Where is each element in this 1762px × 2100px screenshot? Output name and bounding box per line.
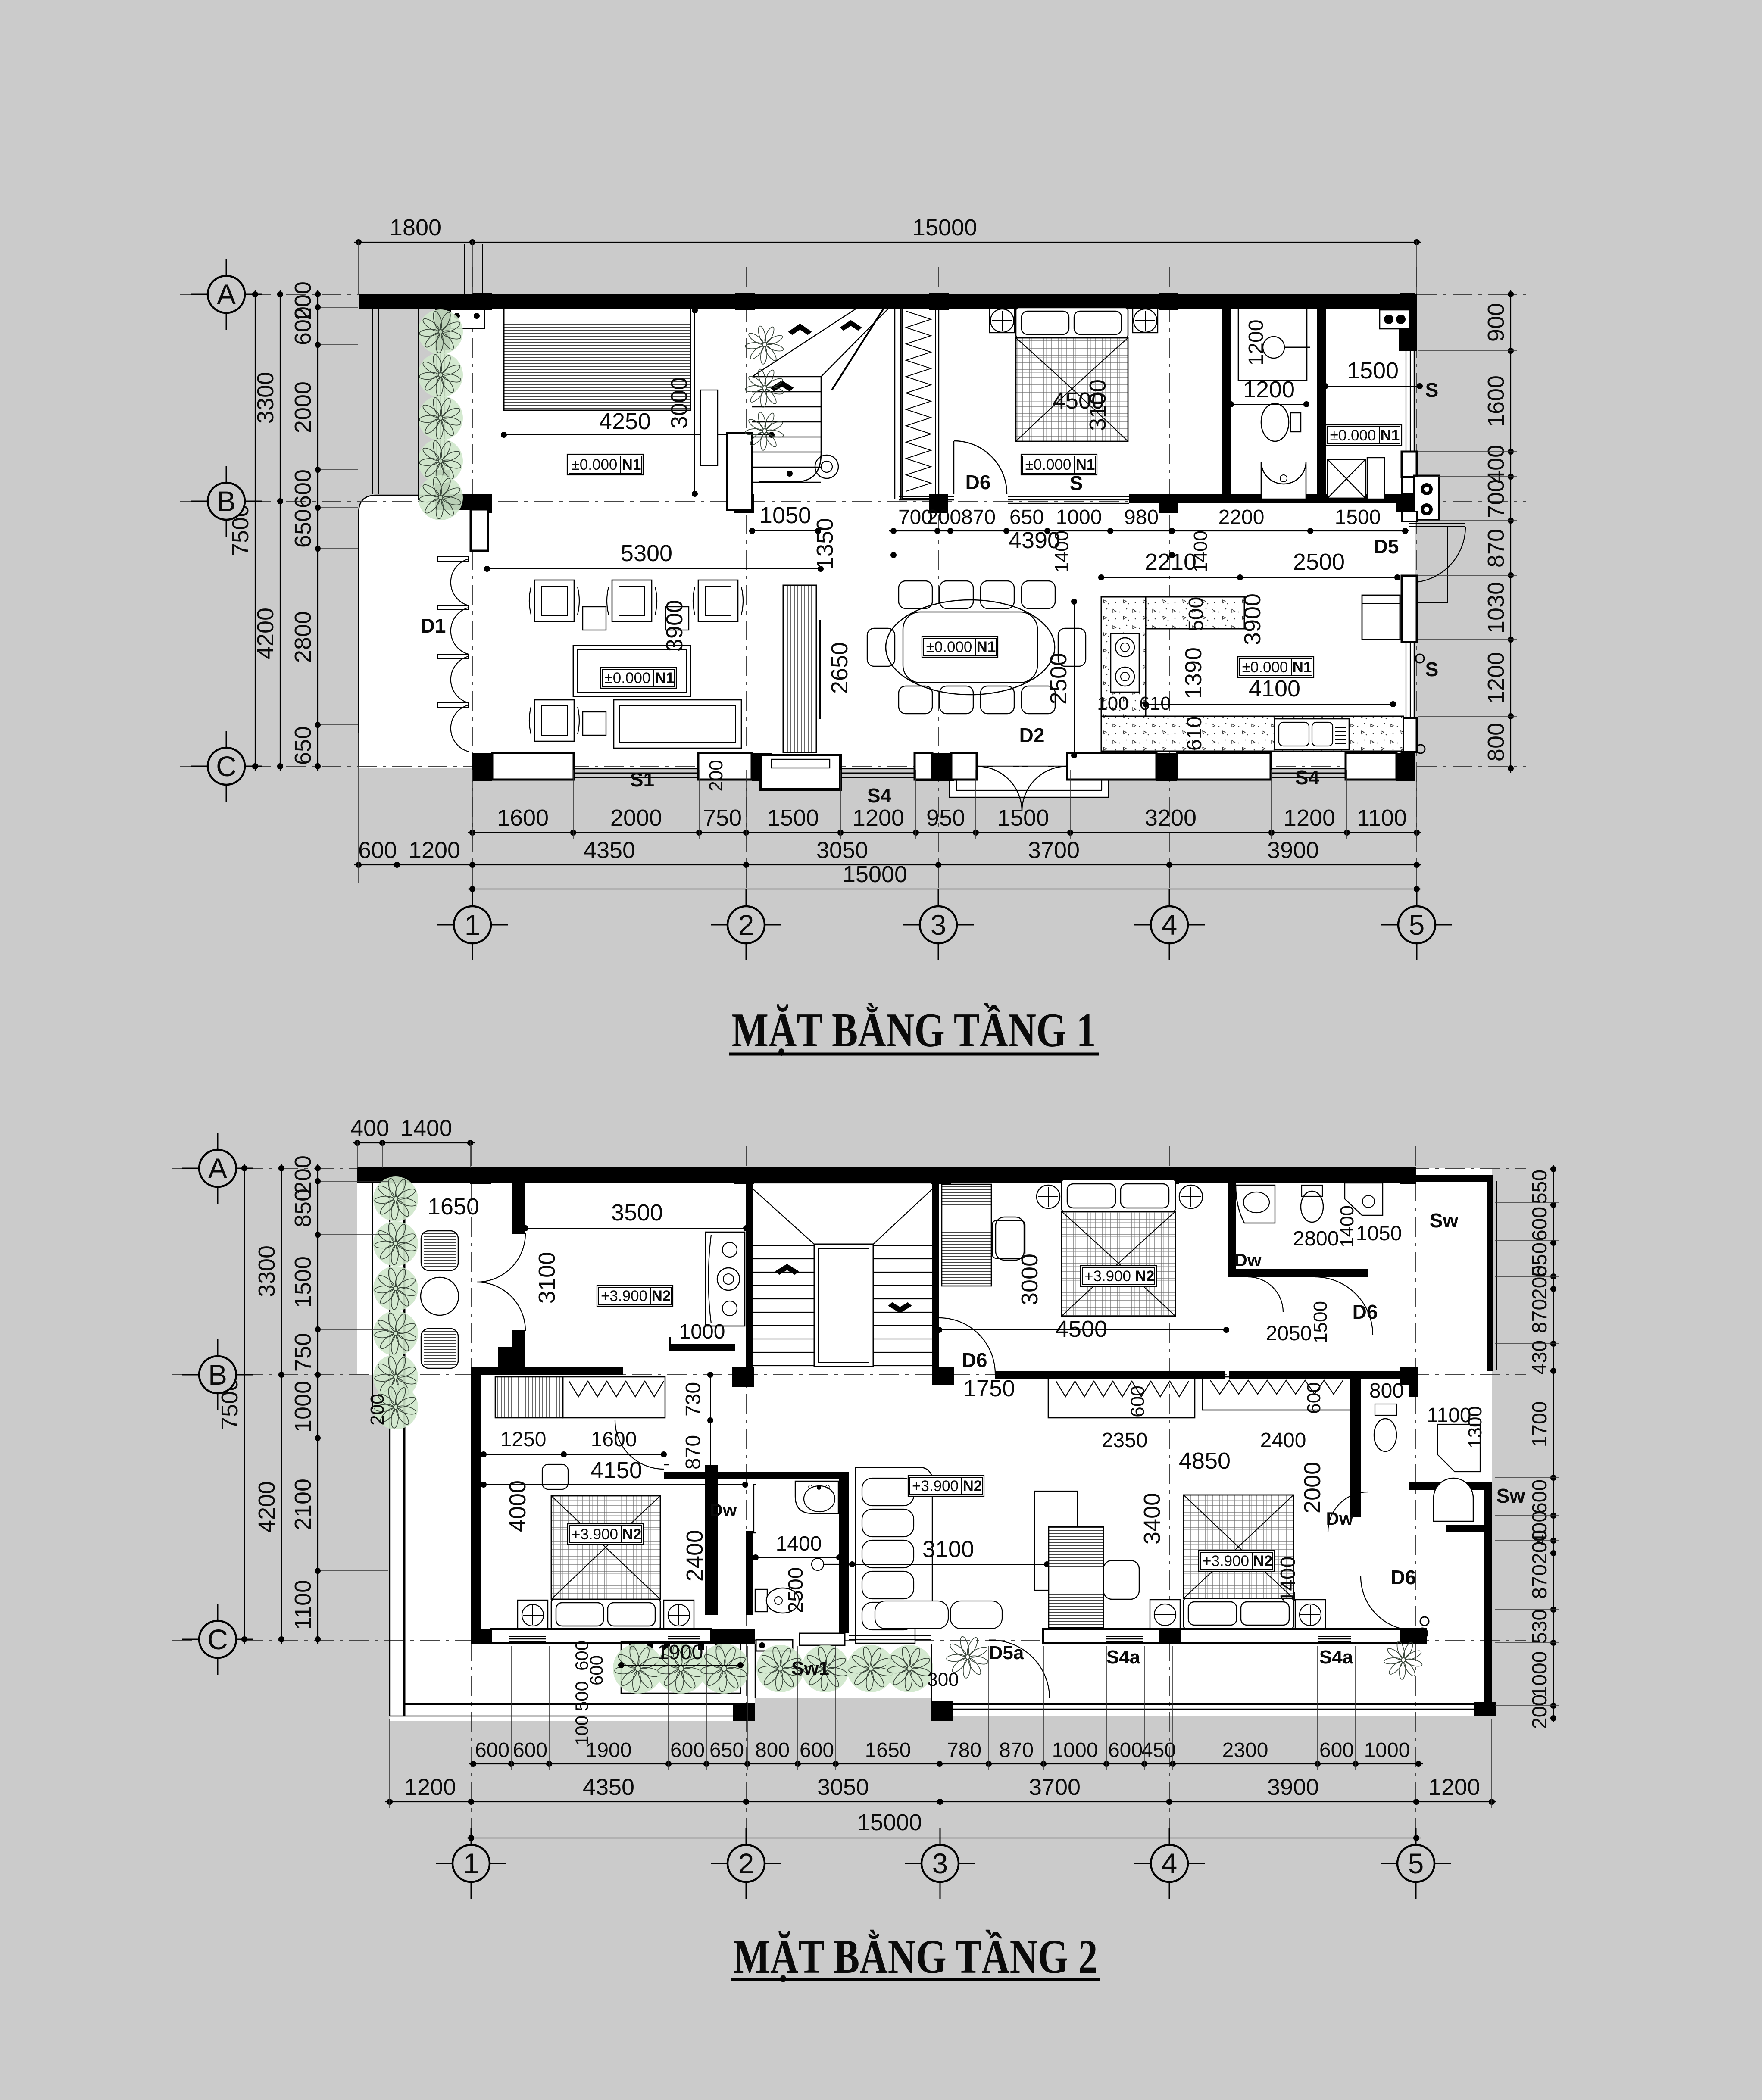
svg-text:+3.900: +3.900 xyxy=(1084,1268,1131,1285)
svg-text:N1: N1 xyxy=(622,456,641,473)
svg-text:1500: 1500 xyxy=(1347,358,1399,384)
svg-text:1200: 1200 xyxy=(409,837,460,863)
svg-text:650: 650 xyxy=(709,1739,744,1762)
svg-text:2100: 2100 xyxy=(290,1479,316,1530)
svg-text:1390: 1390 xyxy=(1181,647,1206,699)
svg-text:S4: S4 xyxy=(867,784,892,807)
svg-text:2500: 2500 xyxy=(784,1567,807,1613)
svg-text:1250: 1250 xyxy=(500,1428,547,1451)
svg-text:870: 870 xyxy=(961,506,996,529)
svg-text:Sw1: Sw1 xyxy=(791,1658,829,1679)
svg-text:2000: 2000 xyxy=(610,805,662,831)
svg-text:1000: 1000 xyxy=(1056,506,1102,529)
svg-text:4200: 4200 xyxy=(253,608,278,659)
svg-text:3400: 3400 xyxy=(1139,1493,1165,1545)
svg-text:±0.000: ±0.000 xyxy=(1330,427,1376,444)
svg-text:2000: 2000 xyxy=(1300,1462,1325,1513)
svg-text:200: 200 xyxy=(1528,1265,1551,1300)
svg-text:3900: 3900 xyxy=(1267,837,1319,863)
svg-text:2800: 2800 xyxy=(290,611,316,663)
svg-text:N1: N1 xyxy=(1293,659,1312,676)
svg-text:±0.000: ±0.000 xyxy=(1025,456,1072,473)
svg-text:600: 600 xyxy=(290,469,316,508)
svg-text:600: 600 xyxy=(1303,1382,1325,1414)
svg-text:1200: 1200 xyxy=(404,1774,456,1800)
svg-text:Dw: Dw xyxy=(1326,1508,1353,1529)
svg-text:600: 600 xyxy=(358,837,397,863)
svg-text:3100: 3100 xyxy=(1085,379,1111,431)
svg-text:3900: 3900 xyxy=(1240,593,1265,645)
svg-text:N2: N2 xyxy=(963,1478,982,1495)
svg-text:+3.900: +3.900 xyxy=(912,1478,959,1495)
svg-text:1000: 1000 xyxy=(1364,1739,1410,1762)
svg-text:4: 4 xyxy=(1162,909,1178,941)
svg-text:N1: N1 xyxy=(1381,427,1400,444)
svg-text:3900: 3900 xyxy=(662,600,687,652)
svg-text:2800: 2800 xyxy=(1293,1227,1339,1250)
svg-text:2000: 2000 xyxy=(290,381,316,433)
svg-text:1: 1 xyxy=(463,1847,479,1879)
svg-text:C: C xyxy=(216,750,237,782)
svg-text:600: 600 xyxy=(1108,1739,1143,1762)
svg-text:200: 200 xyxy=(1528,1530,1551,1564)
svg-text:870: 870 xyxy=(1483,529,1509,568)
svg-text:400: 400 xyxy=(1483,445,1509,484)
svg-text:3700: 3700 xyxy=(1029,1774,1081,1800)
svg-text:1000: 1000 xyxy=(1528,1651,1551,1697)
svg-text:800: 800 xyxy=(755,1739,790,1762)
svg-text:3300: 3300 xyxy=(254,1245,280,1297)
svg-text:15000: 15000 xyxy=(857,1810,922,1835)
svg-text:780: 780 xyxy=(947,1739,981,1762)
svg-text:870: 870 xyxy=(999,1739,1034,1762)
svg-text:1650: 1650 xyxy=(428,1194,479,1220)
svg-text:530: 530 xyxy=(1528,1609,1551,1644)
svg-text:750: 750 xyxy=(703,805,742,831)
svg-text:1600: 1600 xyxy=(591,1428,637,1451)
svg-text:1300: 1300 xyxy=(1465,1406,1486,1448)
svg-text:S4a: S4a xyxy=(1106,1647,1140,1668)
svg-text:1400: 1400 xyxy=(400,1115,452,1141)
svg-text:+3.900: +3.900 xyxy=(1203,1553,1249,1570)
svg-text:1500: 1500 xyxy=(1335,506,1381,529)
svg-text:N2: N2 xyxy=(1135,1268,1155,1285)
svg-text:1000: 1000 xyxy=(290,1381,316,1432)
svg-text:4350: 4350 xyxy=(584,837,635,863)
svg-text:500: 500 xyxy=(572,1681,592,1711)
svg-text:Dw: Dw xyxy=(710,1500,737,1520)
svg-text:3: 3 xyxy=(932,1847,948,1879)
svg-text:610: 610 xyxy=(1183,716,1206,751)
svg-text:800: 800 xyxy=(1369,1379,1404,1402)
svg-text:D6: D6 xyxy=(962,1349,987,1371)
svg-text:1200: 1200 xyxy=(1284,805,1335,831)
svg-text:N2: N2 xyxy=(652,1288,671,1304)
svg-text:850: 850 xyxy=(290,1189,316,1227)
svg-text:1050: 1050 xyxy=(759,502,811,528)
svg-text:N1: N1 xyxy=(977,639,996,655)
svg-text:S: S xyxy=(1425,379,1439,401)
svg-text:200: 200 xyxy=(367,1394,388,1425)
svg-text:±0.000: ±0.000 xyxy=(572,456,618,473)
svg-text:1600: 1600 xyxy=(1483,375,1509,427)
svg-text:1500: 1500 xyxy=(1310,1301,1331,1343)
svg-text:+3.900: +3.900 xyxy=(601,1288,647,1304)
svg-text:730: 730 xyxy=(682,1382,705,1417)
svg-text:750: 750 xyxy=(290,1333,316,1372)
svg-text:1030: 1030 xyxy=(1483,582,1509,633)
svg-text:MẶT BẰNG TẦNG 2: MẶT BẰNG TẦNG 2 xyxy=(734,1929,1098,1984)
svg-text:600: 600 xyxy=(475,1739,509,1762)
svg-text:3900: 3900 xyxy=(1267,1774,1319,1800)
svg-text:600: 600 xyxy=(513,1739,547,1762)
svg-text:1200: 1200 xyxy=(1428,1774,1480,1800)
svg-text:700: 700 xyxy=(1483,479,1509,518)
svg-text:650: 650 xyxy=(1009,506,1044,529)
svg-text:±0.000: ±0.000 xyxy=(605,670,651,686)
svg-text:3300: 3300 xyxy=(253,372,278,424)
svg-text:2200: 2200 xyxy=(1218,506,1265,529)
svg-text:4200: 4200 xyxy=(254,1481,280,1533)
svg-text:650: 650 xyxy=(290,726,316,765)
svg-text:3100: 3100 xyxy=(534,1252,560,1304)
svg-text:S1: S1 xyxy=(630,768,654,791)
svg-text:4000: 4000 xyxy=(505,1480,531,1532)
svg-text:2050: 2050 xyxy=(1266,1322,1312,1345)
svg-text:1800: 1800 xyxy=(390,215,441,240)
svg-text:N1: N1 xyxy=(1076,456,1095,473)
svg-text:4250: 4250 xyxy=(599,409,651,434)
svg-text:600: 600 xyxy=(1127,1385,1148,1417)
svg-text:1350: 1350 xyxy=(812,518,838,570)
svg-text:400: 400 xyxy=(350,1115,389,1141)
svg-text:1: 1 xyxy=(465,909,481,941)
svg-text:1000: 1000 xyxy=(679,1320,725,1343)
svg-text:1500: 1500 xyxy=(997,805,1049,831)
svg-text:1400: 1400 xyxy=(1277,1557,1300,1603)
svg-text:2400: 2400 xyxy=(1260,1429,1306,1452)
svg-text:1500: 1500 xyxy=(767,805,819,831)
svg-text:1600: 1600 xyxy=(497,805,549,831)
svg-text:D5: D5 xyxy=(1374,535,1399,558)
svg-text:1100: 1100 xyxy=(290,1580,316,1630)
svg-text:2400: 2400 xyxy=(682,1530,708,1582)
svg-text:Sw: Sw xyxy=(1430,1209,1459,1232)
svg-text:N1: N1 xyxy=(655,670,675,686)
svg-text:600: 600 xyxy=(670,1739,705,1762)
svg-text:300: 300 xyxy=(927,1669,959,1690)
svg-text:15000: 15000 xyxy=(912,215,977,240)
svg-text:870: 870 xyxy=(1528,1299,1551,1333)
svg-text:1900: 1900 xyxy=(657,1641,703,1664)
svg-text:B: B xyxy=(217,485,236,517)
svg-text:1650: 1650 xyxy=(865,1739,911,1762)
svg-text:4350: 4350 xyxy=(583,1774,634,1800)
svg-text:800: 800 xyxy=(1483,723,1509,761)
svg-text:3100: 3100 xyxy=(922,1536,974,1562)
svg-text:3000: 3000 xyxy=(666,377,692,429)
svg-text:1500: 1500 xyxy=(290,1256,316,1308)
svg-text:550: 550 xyxy=(1528,1170,1551,1204)
svg-text:2500: 2500 xyxy=(1293,549,1345,575)
svg-text:D1: D1 xyxy=(421,615,446,637)
svg-text:1200: 1200 xyxy=(1483,652,1509,704)
svg-text:600: 600 xyxy=(290,306,316,345)
svg-text:4390: 4390 xyxy=(1009,527,1060,553)
svg-text:3: 3 xyxy=(931,909,947,941)
svg-text:N2: N2 xyxy=(622,1526,642,1543)
svg-text:3200: 3200 xyxy=(1145,805,1197,831)
svg-text:950: 950 xyxy=(926,805,965,831)
svg-text:15000: 15000 xyxy=(843,861,907,887)
svg-text:1100: 1100 xyxy=(1357,805,1407,831)
svg-text:870: 870 xyxy=(682,1435,705,1470)
svg-text:1750: 1750 xyxy=(963,1376,1015,1401)
svg-text:980: 980 xyxy=(1124,506,1159,529)
svg-text:A: A xyxy=(217,278,236,310)
svg-text:3500: 3500 xyxy=(611,1200,663,1226)
svg-text:2: 2 xyxy=(738,909,754,941)
svg-text:S4: S4 xyxy=(1295,766,1320,789)
svg-text:200: 200 xyxy=(290,1155,316,1194)
svg-text:A: A xyxy=(208,1152,227,1184)
svg-text:S: S xyxy=(1070,472,1083,494)
svg-text:900: 900 xyxy=(1483,303,1509,342)
svg-text:600: 600 xyxy=(586,1655,606,1685)
svg-text:4150: 4150 xyxy=(590,1457,642,1483)
svg-text:D5a: D5a xyxy=(989,1642,1024,1663)
svg-text:5300: 5300 xyxy=(621,540,672,566)
svg-text:±0.000: ±0.000 xyxy=(1242,659,1288,676)
svg-text:1200: 1200 xyxy=(853,805,904,831)
svg-text:4850: 4850 xyxy=(1179,1448,1231,1474)
svg-text:2: 2 xyxy=(738,1847,754,1879)
svg-text:Dw: Dw xyxy=(1234,1250,1262,1270)
svg-text:3000: 3000 xyxy=(1017,1254,1043,1305)
svg-text:870: 870 xyxy=(1528,1564,1551,1599)
svg-text:1400: 1400 xyxy=(1337,1205,1358,1248)
svg-text:4500: 4500 xyxy=(1056,1316,1107,1342)
svg-text:S: S xyxy=(1425,658,1439,680)
svg-text:650: 650 xyxy=(290,509,316,548)
svg-text:100: 100 xyxy=(1097,693,1128,714)
svg-text:450: 450 xyxy=(1141,1739,1176,1762)
svg-text:200: 200 xyxy=(927,506,961,529)
svg-text:3050: 3050 xyxy=(817,1774,869,1800)
svg-text:2300: 2300 xyxy=(1222,1739,1268,1762)
svg-text:200: 200 xyxy=(706,760,727,791)
svg-text:600: 600 xyxy=(1528,1207,1551,1241)
svg-text:1000: 1000 xyxy=(1052,1739,1098,1762)
svg-text:D6: D6 xyxy=(1353,1301,1378,1323)
svg-text:4: 4 xyxy=(1162,1847,1178,1879)
svg-text:1400: 1400 xyxy=(776,1532,822,1555)
svg-text:430: 430 xyxy=(1528,1340,1551,1375)
svg-text:5: 5 xyxy=(1408,1847,1424,1879)
svg-text:C: C xyxy=(207,1623,228,1655)
svg-text:1400: 1400 xyxy=(1190,530,1211,573)
svg-text:500: 500 xyxy=(1185,597,1208,631)
svg-text:+3.900: +3.900 xyxy=(572,1526,618,1543)
svg-text:3050: 3050 xyxy=(816,837,868,863)
svg-text:N2: N2 xyxy=(1253,1553,1273,1570)
svg-text:1200: 1200 xyxy=(1243,377,1295,403)
svg-text:600: 600 xyxy=(1319,1739,1354,1762)
svg-text:MẶT BẰNG TẦNG 1: MẶT BẰNG TẦNG 1 xyxy=(732,1003,1096,1057)
svg-text:±0.000: ±0.000 xyxy=(926,639,972,655)
svg-text:2650: 2650 xyxy=(827,642,853,694)
svg-text:2350: 2350 xyxy=(1102,1429,1148,1452)
svg-text:2500: 2500 xyxy=(1046,653,1072,705)
svg-text:Sw: Sw xyxy=(1496,1485,1525,1507)
svg-text:D6: D6 xyxy=(965,471,991,493)
svg-text:1050: 1050 xyxy=(1356,1222,1402,1245)
svg-text:4100: 4100 xyxy=(1249,676,1300,702)
svg-text:3700: 3700 xyxy=(1028,837,1080,863)
svg-text:1700: 1700 xyxy=(1528,1401,1551,1448)
svg-text:1200: 1200 xyxy=(1245,320,1268,366)
svg-text:1900: 1900 xyxy=(586,1739,632,1762)
svg-text:600: 600 xyxy=(800,1739,834,1762)
svg-text:B: B xyxy=(208,1359,227,1391)
svg-text:D6: D6 xyxy=(1391,1566,1416,1588)
svg-text:600: 600 xyxy=(1528,1479,1551,1514)
svg-text:200: 200 xyxy=(1528,1694,1551,1729)
svg-text:D2: D2 xyxy=(1019,724,1045,746)
svg-text:5: 5 xyxy=(1409,909,1425,941)
svg-text:S4a: S4a xyxy=(1319,1647,1353,1668)
